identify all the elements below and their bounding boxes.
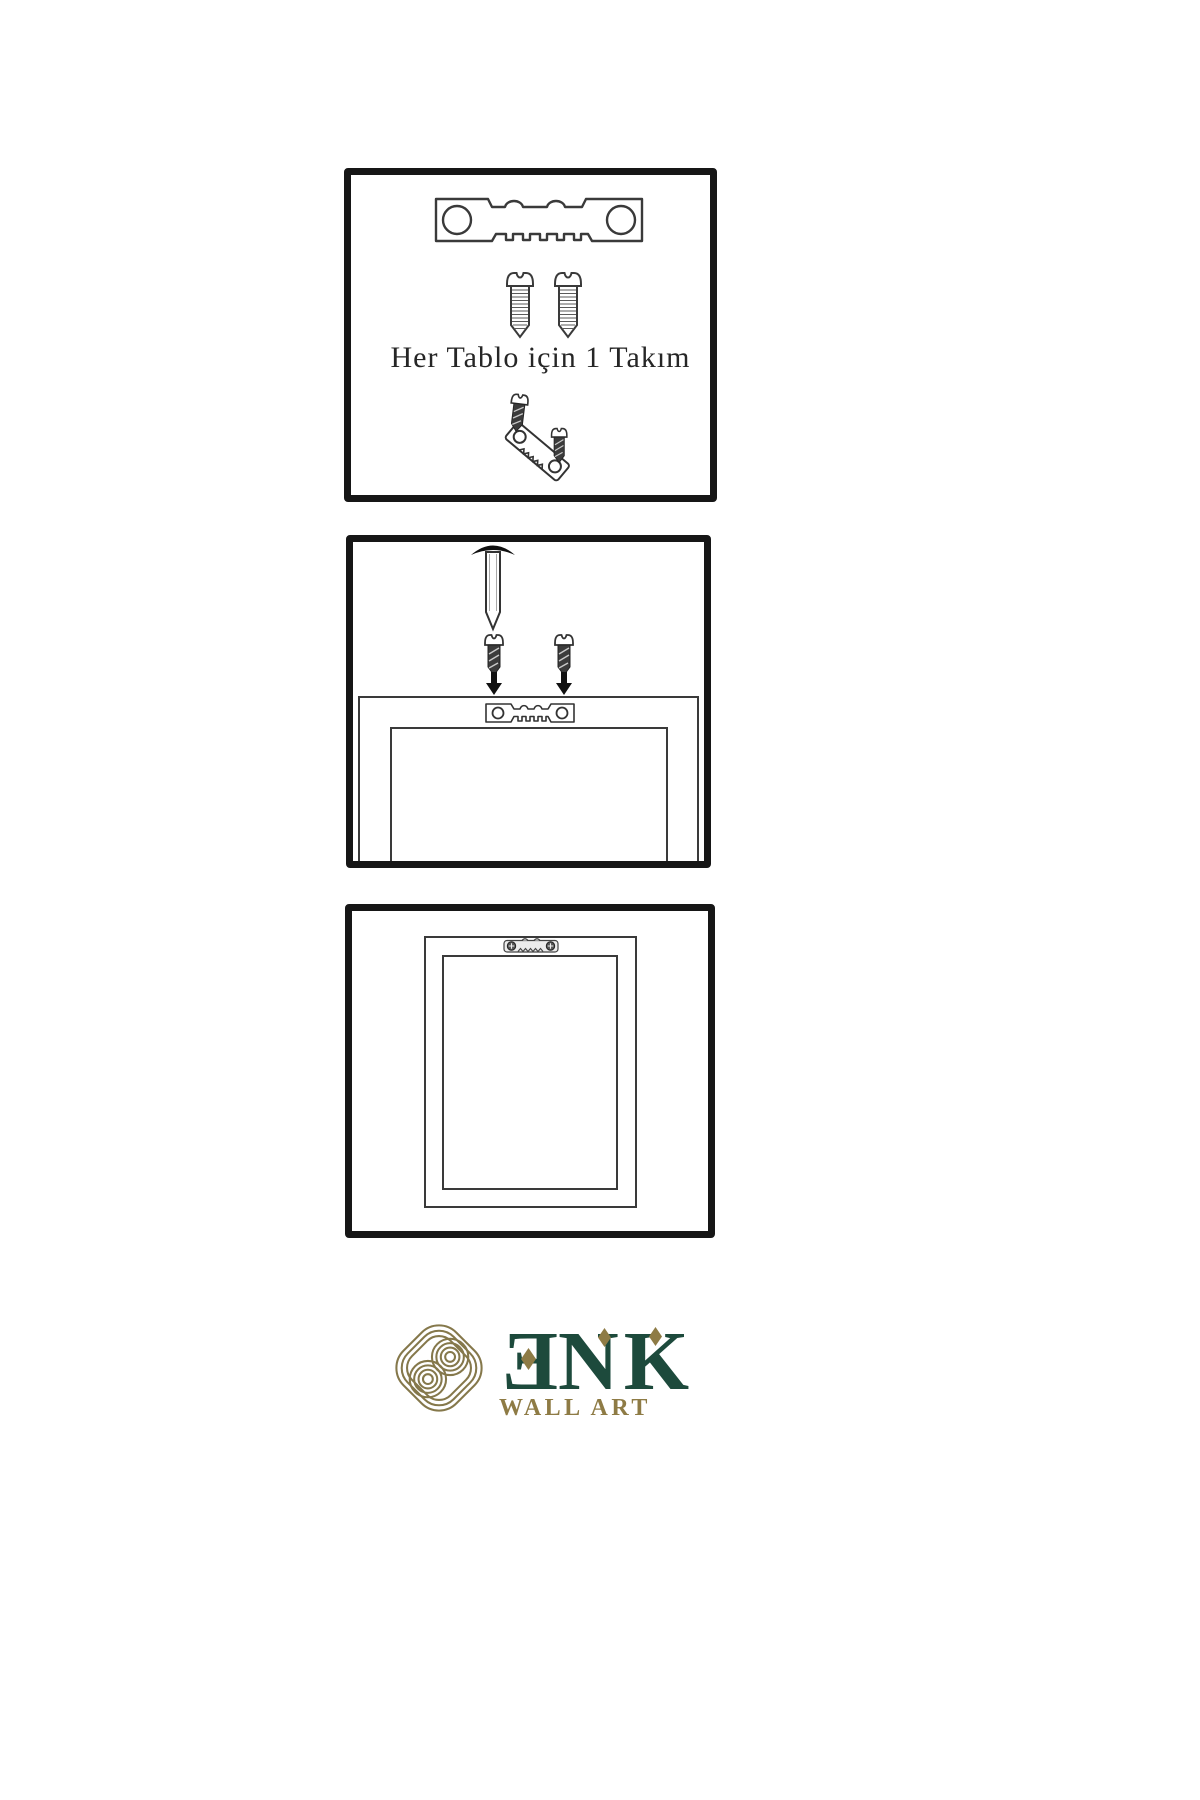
screw-icon [550, 268, 586, 342]
panel-hardware-kit: Her Tablo için 1 Takım [344, 168, 717, 502]
instruction-sheet: { "sheet": { "background": "#ffffff", "t… [0, 0, 1200, 1800]
sawtooth-hanger-icon [433, 195, 645, 245]
frame-back-inner-edge [390, 727, 668, 868]
nail-icon [470, 542, 516, 634]
screw-into-hanger-icon [496, 392, 588, 494]
panel-hung-frame [345, 904, 715, 1238]
frame-front-inner-edge [442, 955, 618, 1190]
sawtooth-hanger-icon [484, 702, 576, 724]
knot-icon [385, 1312, 493, 1424]
kit-caption: Her Tablo için 1 Takım [361, 341, 717, 375]
arrow-down-icon [556, 672, 572, 696]
arrow-down-icon [486, 672, 502, 696]
logo-subtitle: WALL ART [499, 1395, 651, 1422]
panel-wall-mounting [346, 535, 711, 868]
screw-icon [502, 268, 538, 342]
sawtooth-hanger-icon [503, 938, 559, 954]
